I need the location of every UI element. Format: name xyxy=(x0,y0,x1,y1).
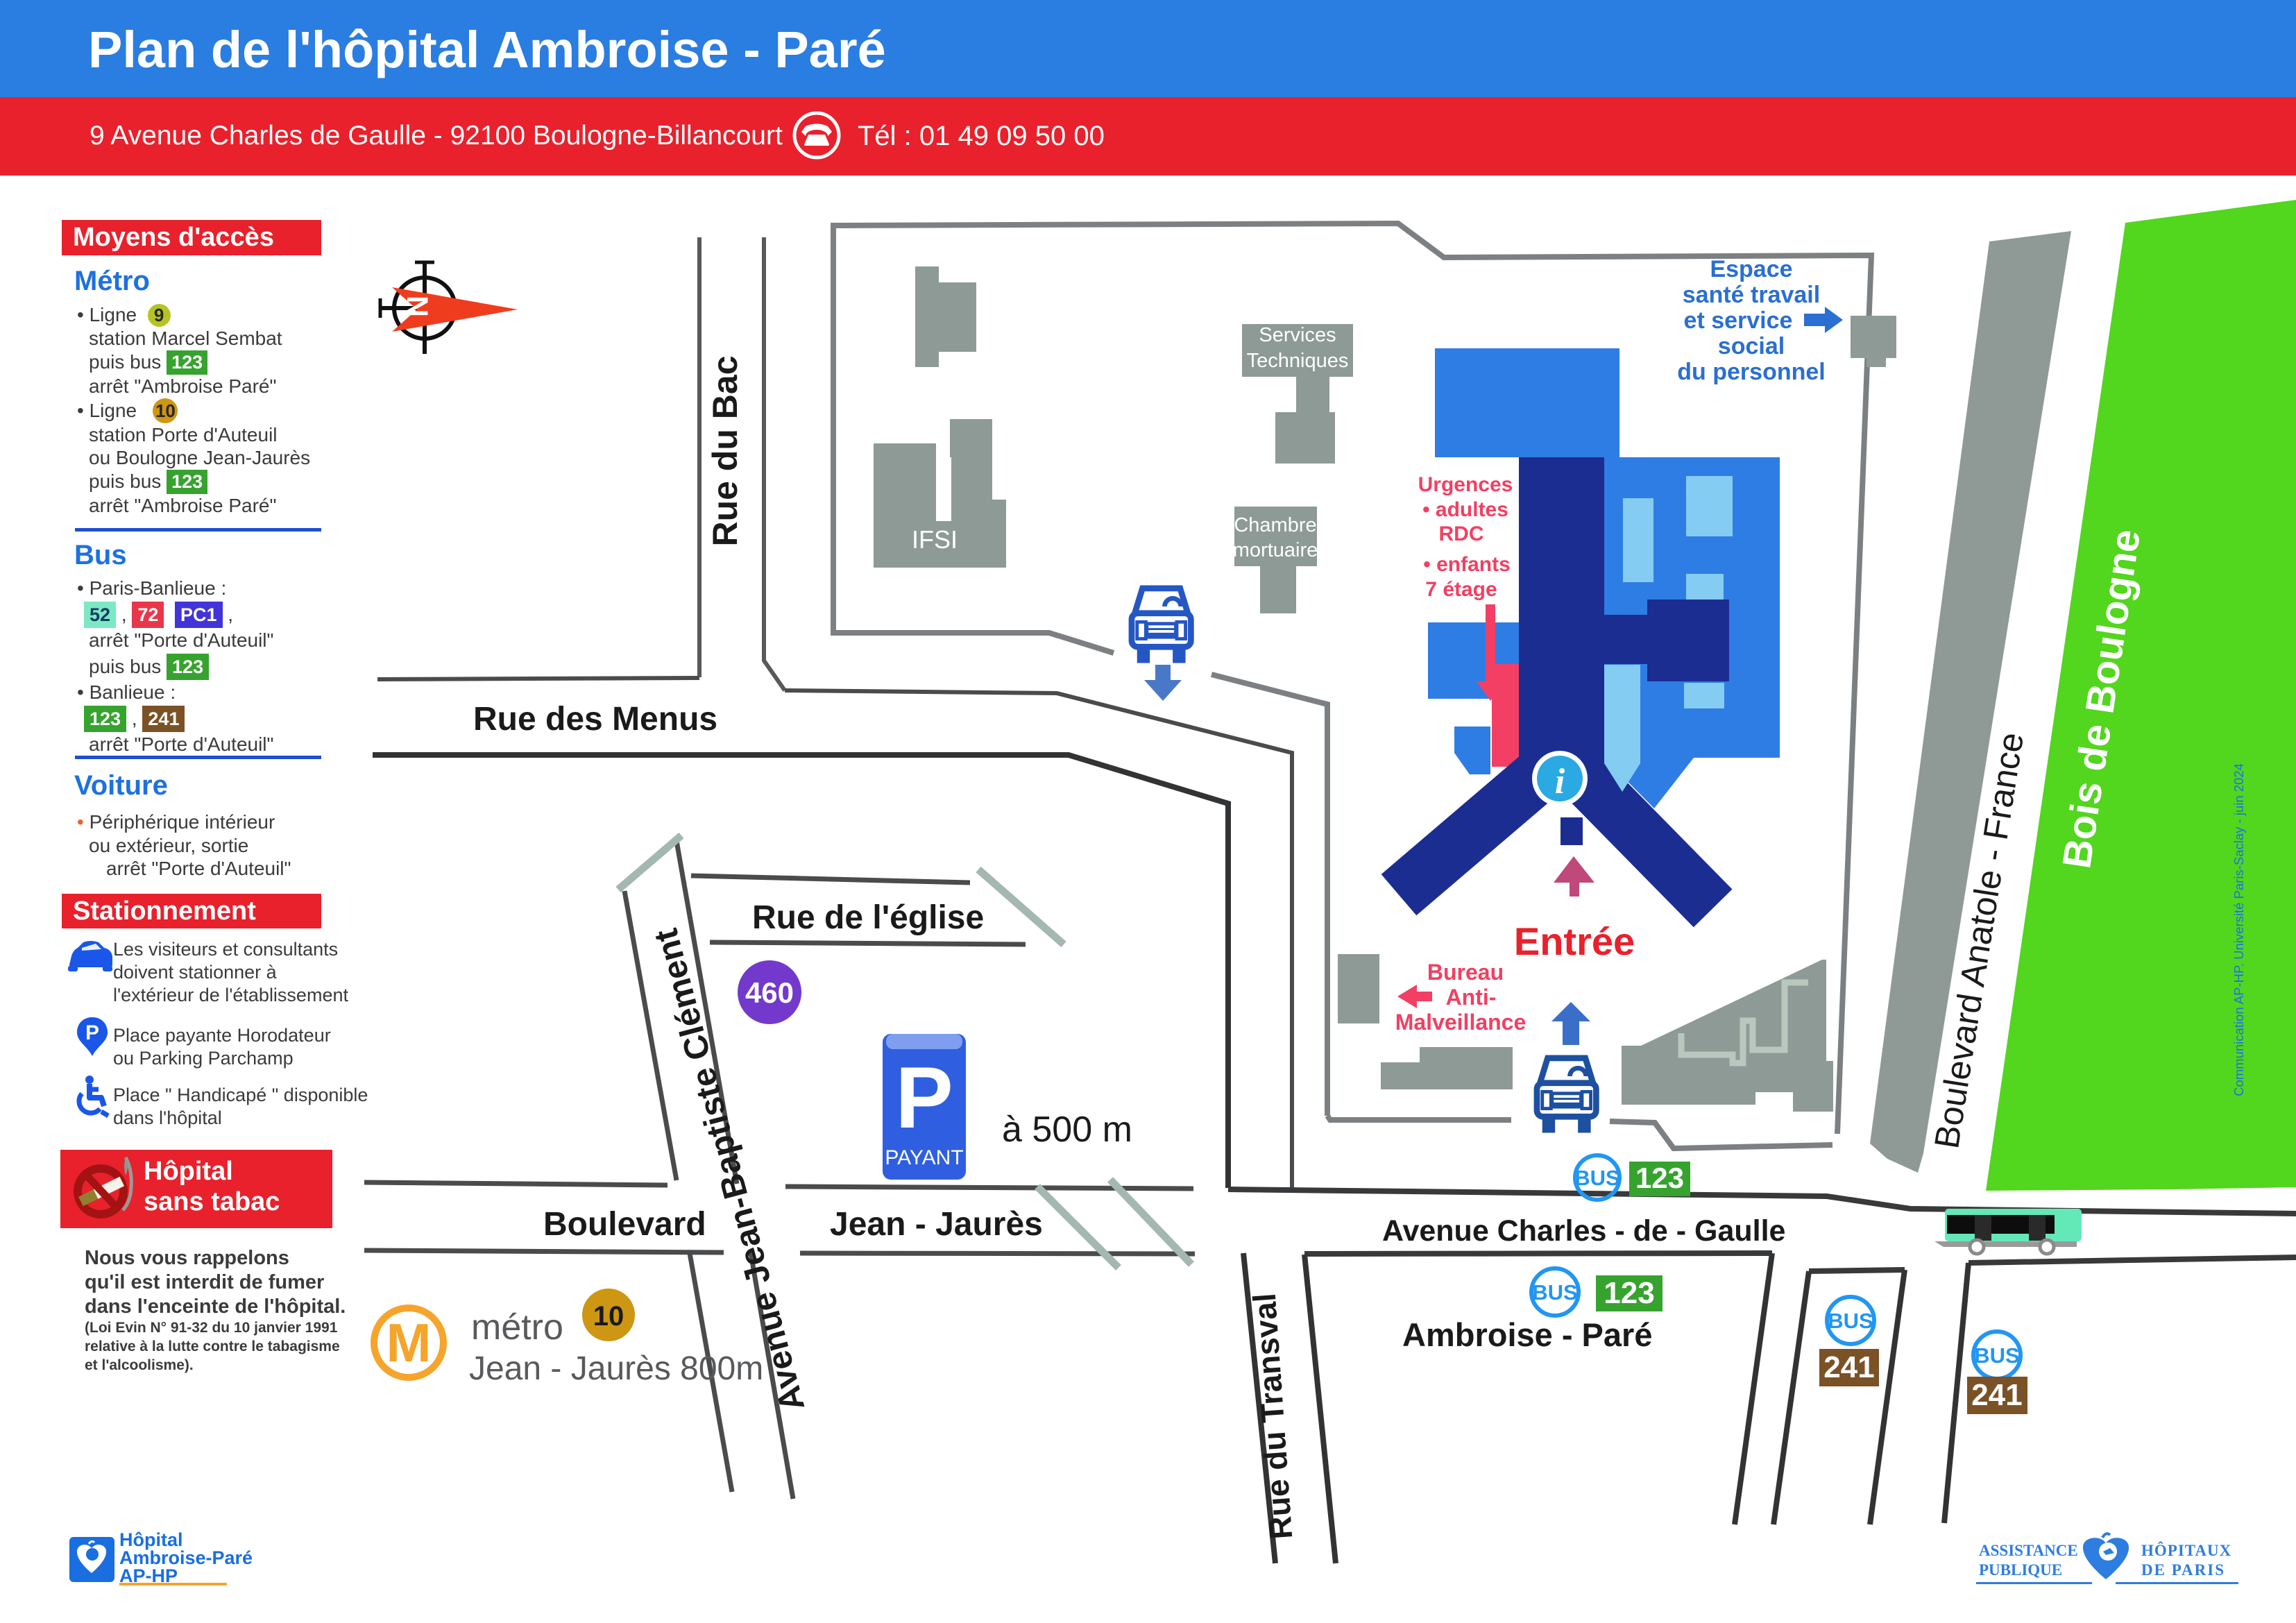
svg-text:Malveillance: Malveillance xyxy=(1395,1010,1527,1035)
svg-text:Ambroise - Paré: Ambroise - Paré xyxy=(1402,1316,1652,1353)
svg-text:Rue du Transval: Rue du Transval xyxy=(1246,1292,1300,1540)
svg-text:Bureau: Bureau xyxy=(1427,960,1504,985)
svg-text:métro: métro xyxy=(471,1307,563,1348)
svg-text:Anti-: Anti- xyxy=(1446,985,1497,1010)
svg-text:Avenue Charles - de - Gaulle: Avenue Charles - de - Gaulle xyxy=(1382,1214,1785,1248)
svg-text:BUS: BUS xyxy=(1574,1166,1619,1190)
svg-text:10: 10 xyxy=(593,1301,624,1332)
svg-text:et service: et service xyxy=(1684,307,1793,334)
svg-text:• enfants: • enfants xyxy=(1423,553,1511,576)
svg-text:BUS: BUS xyxy=(1974,1343,2019,1368)
svg-text:Boulevard: Boulevard xyxy=(543,1206,706,1243)
svg-text:Rue de l'église: Rue de l'église xyxy=(752,899,984,936)
svg-text:mortuaire: mortuaire xyxy=(1233,539,1318,561)
svg-text:RDC: RDC xyxy=(1439,522,1484,545)
svg-text:Rue du Bac: Rue du Bac xyxy=(706,355,745,546)
svg-text:Urgences: Urgences xyxy=(1418,473,1513,496)
svg-text:Rue des Menus: Rue des Menus xyxy=(473,701,717,738)
svg-text:123: 123 xyxy=(1604,1276,1654,1310)
svg-text:DE PARIS: DE PARIS xyxy=(2141,1561,2225,1579)
svg-text:241: 241 xyxy=(1823,1350,1874,1384)
svg-text:P: P xyxy=(895,1050,953,1146)
svg-text:PUBLIQUE: PUBLIQUE xyxy=(1979,1561,2062,1579)
svg-text:HÔPITAUX: HÔPITAUX xyxy=(2141,1541,2231,1559)
svg-text:Jean - Jaurès: Jean - Jaurès xyxy=(830,1206,1043,1243)
svg-text:IFSI: IFSI xyxy=(912,525,958,554)
svg-text:460: 460 xyxy=(745,976,794,1009)
svg-text:7 étage: 7 étage xyxy=(1425,578,1497,601)
svg-text:M: M xyxy=(386,1312,432,1373)
svg-text:Communication AP-HP. Universit: Communication AP-HP. Université Paris-Sa… xyxy=(2231,763,2246,1096)
svg-text:Services: Services xyxy=(1259,324,1336,346)
svg-text:santé travail: santé travail xyxy=(1683,282,1820,308)
svg-text:social: social xyxy=(1718,333,1785,359)
svg-text:BUS: BUS xyxy=(1828,1309,1873,1333)
svg-text:BUS: BUS xyxy=(1532,1280,1577,1305)
svg-text:i: i xyxy=(1555,762,1565,801)
svg-text:241: 241 xyxy=(1971,1378,2022,1412)
svg-text:Entrée: Entrée xyxy=(1514,919,1635,963)
svg-text:à 500 m: à 500 m xyxy=(1002,1110,1132,1150)
svg-text:123: 123 xyxy=(1635,1162,1684,1194)
svg-text:Techniques: Techniques xyxy=(1247,350,1349,372)
svg-text:Espace: Espace xyxy=(1710,256,1792,282)
svg-text:• adultes: • adultes xyxy=(1422,498,1508,521)
svg-text:Jean - Jaurès 800m: Jean - Jaurès 800m xyxy=(469,1350,763,1387)
svg-text:du personnel: du personnel xyxy=(1677,359,1825,385)
svg-text:ASSISTANCE: ASSISTANCE xyxy=(1979,1542,2078,1559)
svg-text:N: N xyxy=(400,296,434,317)
svg-text:PAYANT: PAYANT xyxy=(885,1146,963,1169)
svg-text:Chambre: Chambre xyxy=(1234,514,1316,536)
